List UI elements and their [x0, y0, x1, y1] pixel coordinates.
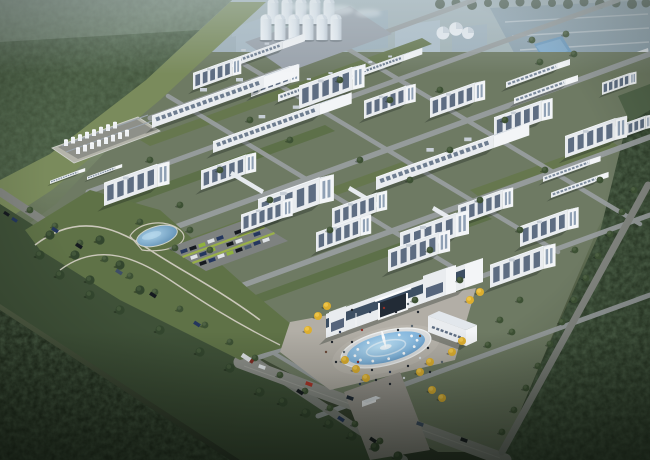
- bottom-shade: [0, 0, 650, 460]
- aerial-rendering: Aerial rendering of an industrial park c…: [0, 0, 650, 460]
- campus-rendering-canvas: Aerial rendering of an industrial park c…: [0, 0, 650, 460]
